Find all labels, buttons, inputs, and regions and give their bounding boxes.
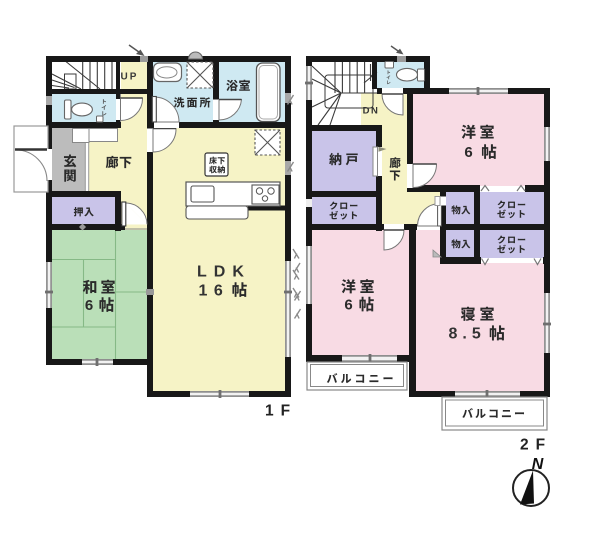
svg-text:2F: 2F xyxy=(520,437,552,454)
svg-text:16: 16 xyxy=(199,283,230,300)
svg-text:6: 6 xyxy=(344,297,352,314)
svg-text:UP: UP xyxy=(121,72,139,83)
svg-text:8.5: 8.5 xyxy=(449,326,486,343)
svg-text:6: 6 xyxy=(464,144,472,161)
svg-text:6: 6 xyxy=(85,297,93,314)
svg-text:1F: 1F xyxy=(265,403,297,420)
svg-text:LDK: LDK xyxy=(197,264,251,281)
svg-text:N: N xyxy=(532,456,544,473)
svg-text:DN: DN xyxy=(363,106,380,117)
